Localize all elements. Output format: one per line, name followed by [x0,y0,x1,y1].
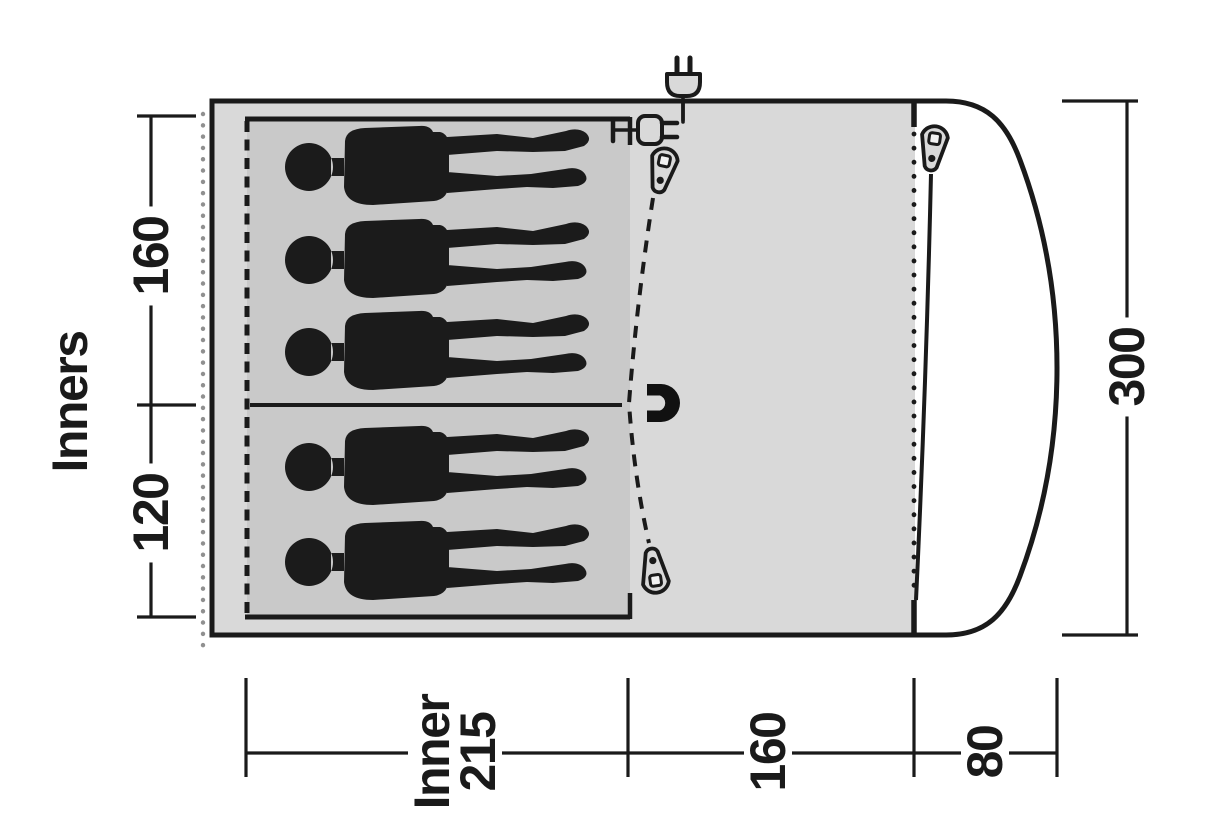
tent-depth-label: 300 [1103,318,1151,417]
inner-height-top-label: 160 [127,207,175,306]
living-width-label: 160 [744,703,792,802]
tent-floorplan-diagram: Inners 160 120 300 Inner 215 160 80 [0,0,1230,833]
inner-width-label-line2: 215 [455,695,501,810]
inner-width-label-line1: Inner [409,695,455,810]
inner-height-bottom-label: 120 [127,464,175,563]
inner-width-label: Inner 215 [408,685,502,820]
canopy-width-label: 80 [961,716,1009,789]
inners-label: Inners [46,321,94,482]
tent-floorplan-svg [0,0,1230,833]
